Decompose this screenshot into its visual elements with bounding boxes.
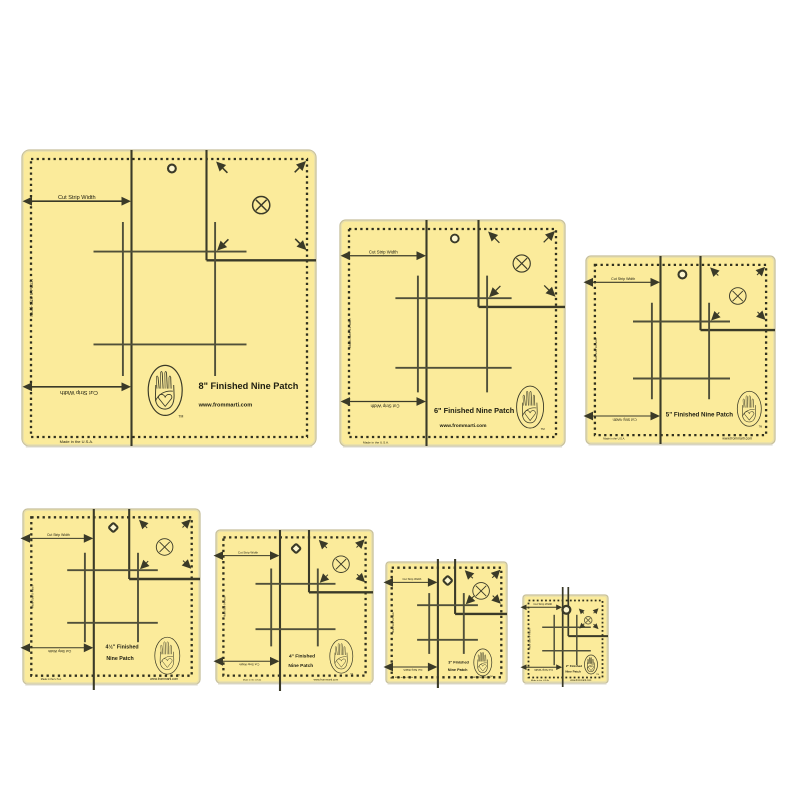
- svg-text:Multi-Size 9-Patch: Multi-Size 9-Patch: [29, 279, 34, 317]
- svg-text:Cut Strip Width: Cut Strip Width: [613, 418, 637, 422]
- svg-text:www.frommarti.com: www.frommarti.com: [198, 402, 253, 408]
- svg-text:TM: TM: [350, 674, 353, 676]
- svg-text:Cut Strip Width: Cut Strip Width: [58, 195, 96, 201]
- svg-text:Made in the U.S.A.: Made in the U.S.A.: [603, 436, 625, 440]
- svg-text:Cut Strip Width: Cut Strip Width: [402, 577, 421, 581]
- svg-text:6" Finished Nine Patch: 6" Finished Nine Patch: [434, 406, 515, 415]
- svg-text:TM: TM: [596, 674, 599, 676]
- svg-text:4" Finished: 4" Finished: [289, 653, 315, 659]
- svg-text:Nine Patch: Nine Patch: [448, 668, 468, 672]
- svg-text:Made in the U.S.A.: Made in the U.S.A.: [531, 679, 550, 682]
- svg-text:Multi-Size 9-Patch: Multi-Size 9-Patch: [528, 628, 532, 650]
- svg-text:3" Finished: 3" Finished: [448, 660, 469, 664]
- svg-text:Cut Strip Width: Cut Strip Width: [369, 250, 399, 255]
- svg-text:Multi-Size 9-Patch: Multi-Size 9-Patch: [391, 611, 395, 633]
- svg-text:TM: TM: [178, 414, 183, 418]
- svg-text:Made in the U.S.A.: Made in the U.S.A.: [363, 440, 389, 444]
- svg-text:Multi-Size 9-Patch: Multi-Size 9-Patch: [223, 595, 227, 617]
- svg-text:2" Finished: 2" Finished: [566, 664, 582, 668]
- svg-text:Cut Strip Width: Cut Strip Width: [48, 649, 71, 653]
- svg-text:Made in the U.S.A.: Made in the U.S.A.: [243, 679, 262, 682]
- svg-text:Multi-Size 9-Patch: Multi-Size 9-Patch: [348, 318, 352, 347]
- svg-text:Nine Patch: Nine Patch: [106, 656, 133, 662]
- svg-text:www.frommarti.com: www.frommarti.com: [470, 676, 491, 679]
- svg-text:Made in the U.S.A.: Made in the U.S.A.: [60, 439, 94, 444]
- svg-text:www.frommarti.com: www.frommarti.com: [314, 678, 339, 682]
- svg-text:www.frommarti.com: www.frommarti.com: [722, 436, 752, 440]
- svg-text:Cut Strip Width: Cut Strip Width: [239, 662, 260, 666]
- svg-text:www.frommarti.com: www.frommarti.com: [439, 423, 487, 429]
- svg-text:TM: TM: [759, 427, 762, 429]
- svg-text:Multi-Size 9-Patch: Multi-Size 9-Patch: [31, 585, 35, 608]
- svg-text:Nine Patch: Nine Patch: [288, 663, 313, 669]
- svg-text:Cut Strip Width: Cut Strip Width: [60, 389, 98, 395]
- svg-text:Cut Strip Width: Cut Strip Width: [47, 533, 70, 537]
- svg-text:Cut Strip Width: Cut Strip Width: [611, 277, 635, 281]
- svg-text:Cut Strip Width: Cut Strip Width: [238, 550, 259, 554]
- svg-text:Nine Patch: Nine Patch: [565, 669, 581, 673]
- svg-text:5" Finished Nine Patch: 5" Finished Nine Patch: [666, 412, 733, 419]
- svg-text:Cut Strip Width: Cut Strip Width: [533, 602, 552, 606]
- svg-text:Cut Strip Width: Cut Strip Width: [534, 668, 553, 672]
- svg-text:4½" Finished: 4½" Finished: [106, 644, 139, 651]
- svg-text:www.frommarti.com: www.frommarti.com: [150, 677, 178, 681]
- svg-text:Cut Strip Width: Cut Strip Width: [370, 404, 400, 409]
- svg-text:www.frommarti.com: www.frommarti.com: [570, 679, 591, 682]
- svg-text:Cut Strip Width: Cut Strip Width: [403, 668, 422, 672]
- svg-text:Multi-Size 9-Patch: Multi-Size 9-Patch: [594, 337, 598, 362]
- svg-text:8" Finished Nine Patch: 8" Finished Nine Patch: [198, 381, 298, 391]
- svg-text:Made in the U.S.A.: Made in the U.S.A.: [395, 676, 414, 679]
- svg-text:Made in the U.S.A.: Made in the U.S.A.: [41, 678, 62, 681]
